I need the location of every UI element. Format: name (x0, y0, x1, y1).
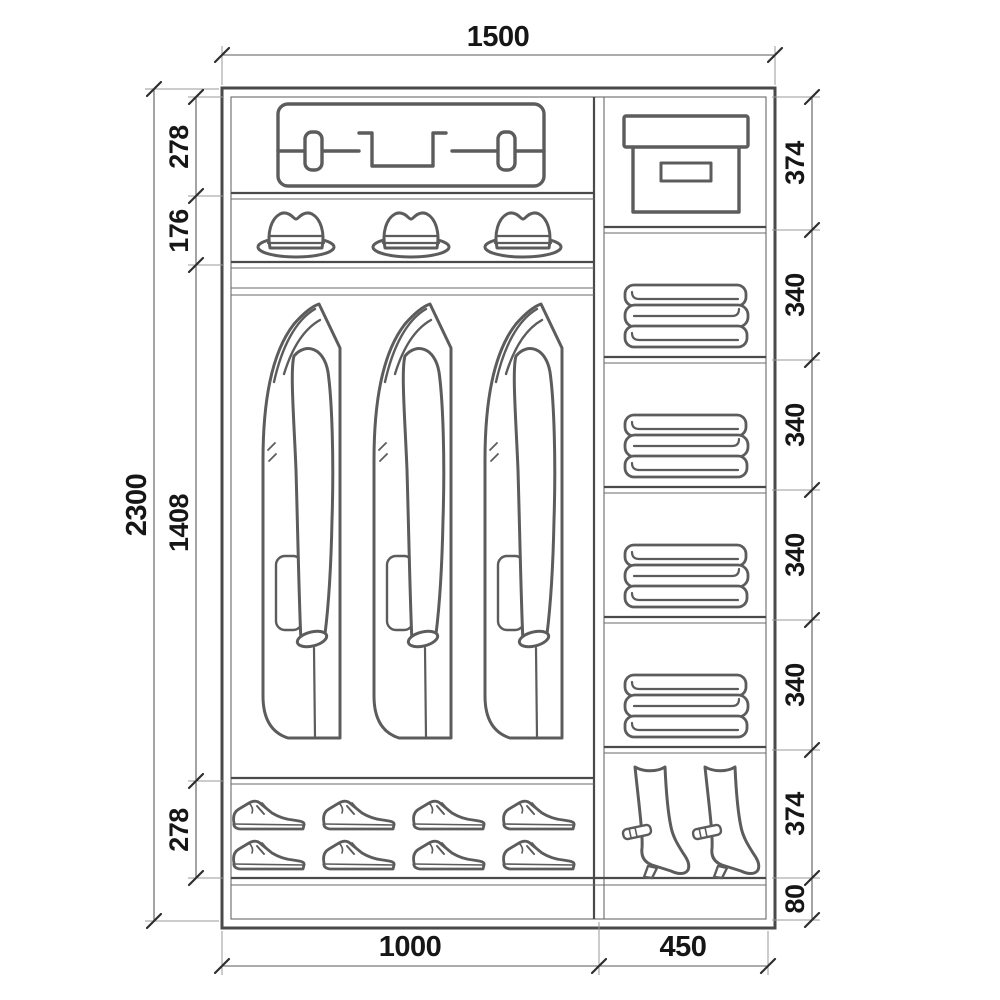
folded-blanket-icon (625, 545, 748, 607)
dress-shoe-icon (324, 801, 395, 829)
folded-blanket-icon (625, 675, 748, 737)
hanging-rail (231, 288, 594, 295)
dim-right-section-4-label: 340 (780, 533, 810, 577)
dim-right-section-6-label: 374 (780, 792, 810, 836)
right-shelf-2 (604, 357, 766, 363)
dress-shoe-icon (504, 841, 575, 869)
dim-right-section-5-label: 340 (780, 663, 810, 707)
dress-shoe-icon (414, 801, 485, 829)
right-shelf-5 (604, 747, 766, 753)
dress-shoe-icon (414, 841, 485, 869)
dim-left-section-1-label: 278 (164, 125, 194, 169)
left-shelf-under-suitcase (231, 193, 594, 199)
high-heel-boot-icon (622, 767, 689, 878)
dim-bottom-right-width-label: 450 (660, 931, 707, 963)
right-shelf-3 (604, 487, 766, 493)
suitcase-clasp-right (498, 132, 515, 170)
dim-overall-width: 1500 (215, 21, 782, 85)
dim-right-chain: 374 340 340 340 340 374 80 (772, 90, 820, 927)
dim-left-chain: 278 176 1408 278 (164, 90, 224, 885)
left-shelf-under-hats (231, 262, 594, 268)
hanging-coat-icon (374, 304, 451, 738)
fedora-hat-icon (373, 213, 449, 257)
fedora-hat-icon (258, 213, 334, 257)
right-shelf-1 (604, 227, 766, 233)
left-shelf-above-shoes (231, 778, 594, 784)
dim-bottom-left-width-label: 1000 (379, 931, 442, 963)
right-shelf-4 (604, 617, 766, 623)
dim-plinth-height-label: 80 (780, 884, 810, 913)
folded-blanket-icon (625, 415, 748, 477)
center-divider (594, 97, 604, 919)
hanging-coat-icon (263, 304, 340, 738)
dim-overall-width-label: 1500 (467, 21, 530, 53)
dim-left-section-4-label: 278 (164, 808, 194, 852)
dress-shoe-icon (234, 801, 305, 829)
dress-shoe-icon (504, 801, 575, 829)
contents-icons (234, 104, 759, 878)
dress-shoe-icon (324, 841, 395, 869)
plinth-base (231, 878, 766, 885)
dim-right-section-2-label: 340 (780, 273, 810, 317)
hanging-coat-icon (485, 304, 562, 738)
dim-left-section-3-label: 1408 (164, 493, 194, 552)
fedora-hat-icon (485, 213, 561, 257)
dress-shoe-icon (234, 841, 305, 869)
suitcase-icon (278, 104, 544, 186)
high-heel-boot-icon (692, 767, 759, 878)
dim-bottom-widths: 1000 450 (215, 922, 775, 975)
dim-right-section-3-label: 340 (780, 403, 810, 447)
dim-right-section-1-label: 374 (780, 141, 810, 185)
dim-overall-height-label: 2300 (121, 474, 153, 537)
wardrobe-drawing: 1500 2300 278 176 1408 278 (0, 0, 1000, 1000)
suitcase-clasp-left (305, 132, 322, 170)
storage-box-icon (624, 116, 748, 212)
dim-left-section-2-label: 176 (164, 209, 194, 253)
folded-blanket-icon (625, 285, 748, 347)
wardrobe-elevation-svg: 1500 2300 278 176 1408 278 (0, 0, 1000, 1000)
